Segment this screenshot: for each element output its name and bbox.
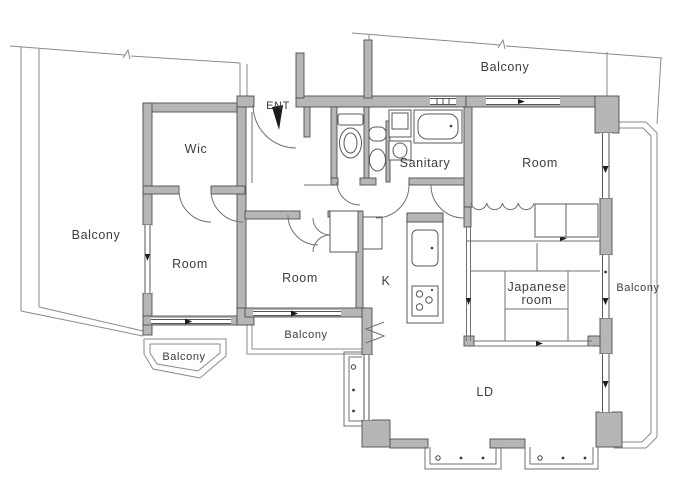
closet-folding-door-icon [471,203,534,210]
washbasin-icon [369,127,386,171]
bay-window [525,447,598,469]
label-balcony-bottom-middle: Balcony [284,329,327,341]
label-room-middle: Room [282,271,318,285]
label-room-left: Room [172,257,208,271]
window [430,97,456,105]
label-wic: Wic [185,142,208,156]
floor-plan-page: ENT Wic Sanitary Room Balcony Balcony Ba… [0,0,680,478]
bathtub-icon [414,110,462,143]
bay-windows [344,352,598,469]
washer-icon [389,110,411,137]
door-arc [179,190,211,222]
window [600,255,612,318]
label-balcony-bottom-left: Balcony [162,351,205,363]
window [151,318,231,325]
bay-window [425,447,501,469]
bay-window [344,352,362,426]
windows [143,97,612,420]
refrigerator-space [363,217,382,249]
closet-double-door-icon [313,218,330,252]
label-japanese-room-line1: Japanese [507,280,566,294]
closet-box [330,211,358,252]
window [600,354,612,412]
label-sanitary: Sanitary [400,156,451,170]
window [143,225,152,293]
floor-plan-drawing: ENT Wic Sanitary Room Balcony Balcony Ba… [0,0,680,478]
window [486,97,560,105]
closet-box [535,204,598,237]
label-kitchen: K [382,274,391,288]
label-balcony-right: Balcony [616,282,659,294]
window [253,310,341,317]
door-arc [337,182,360,205]
label-room-top-right: Room [522,156,558,170]
label-balcony-top: Balcony [481,60,530,74]
window [362,355,372,420]
label-balcony-left: Balcony [72,228,121,242]
window [600,133,612,198]
toilet-icon [338,114,363,158]
label-living-dining: LD [476,385,493,399]
kitchen-counter [407,213,443,323]
door-arc [376,185,409,218]
label-ent: ENT [266,100,290,112]
label-japanese-room-line2: room [522,293,553,307]
